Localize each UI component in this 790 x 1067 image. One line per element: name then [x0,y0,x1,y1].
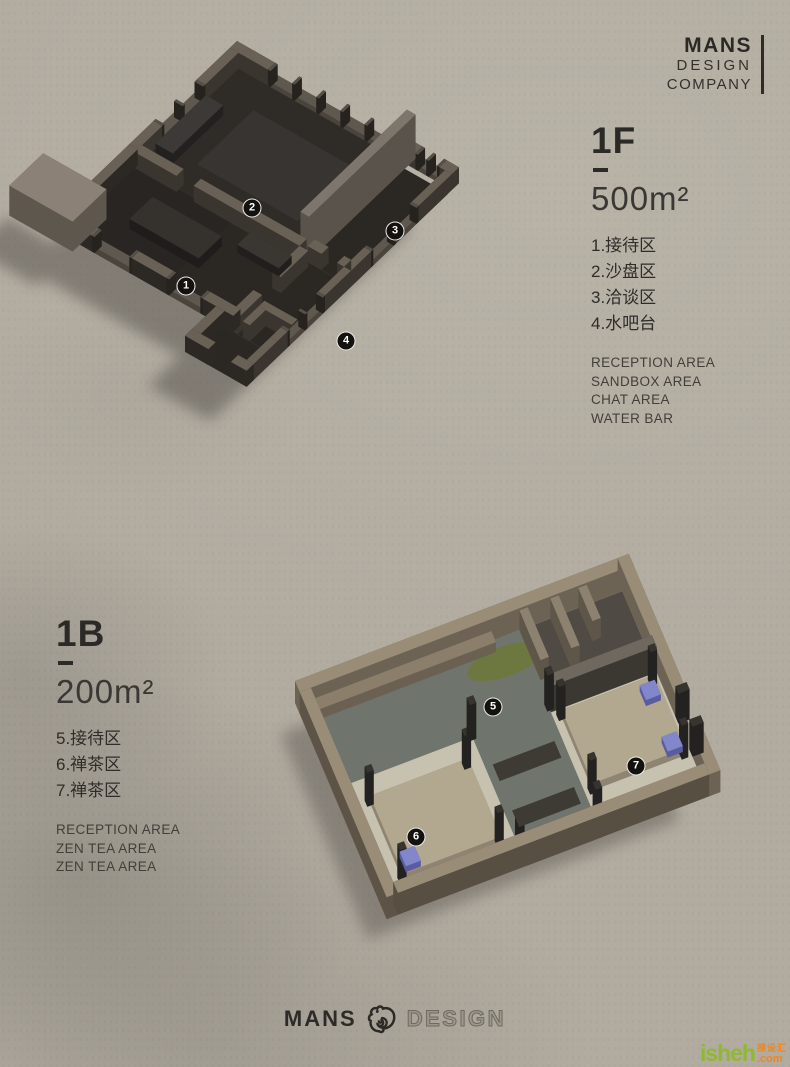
watermark-name: isheh [700,1042,755,1065]
legend-item-en: ZEN TEA AREA [56,840,180,859]
dash-divider [593,168,608,172]
site-watermark: isheh 搜设汇 .com [700,1042,787,1065]
footer-brand-design: DESIGN [407,1006,506,1032]
legend-item-en: RECEPTION AREA [591,354,715,373]
legend-1b-en-list: RECEPTION AREA ZEN TEA AREA ZEN TEA AREA [56,821,180,877]
watermark-side: 搜设汇 .com [757,1044,787,1065]
legend-item-en: RECEPTION AREA [56,821,180,840]
logo-line-2: DESIGN [667,57,752,76]
logo-line-3: COMPANY [667,76,752,94]
footer-brand-name: MANS [284,1006,357,1032]
watermark-cn: 搜设汇 [757,1044,787,1053]
legend-item-cn: 4.水吧台 [591,311,715,337]
floor-plan-1b [281,554,721,939]
legend-item-en: WATER BAR [591,410,715,429]
legend-1f-en-list: RECEPTION AREA SANDBOX AREA CHAT AREA WA… [591,354,715,428]
watermark-tld: .com [757,1054,787,1065]
legend-item-en: CHAT AREA [591,391,715,410]
legend-1f: 1F 500m² 1.接待区 2.沙盘区 3.洽谈区 4.水吧台 RECEPTI… [591,120,715,428]
legend-item-en: ZEN TEA AREA [56,858,180,877]
dash-divider [58,661,73,665]
chameleon-logo-icon [366,1004,398,1034]
floor-area-1b: 200m² [56,673,180,711]
logo-line-1: MANS [667,35,752,57]
legend-item-cn: 3.洽谈区 [591,285,715,311]
legend-item-en: SANDBOX AREA [591,373,715,392]
floor-code-1b: 1B [56,613,180,655]
floor-area-1f: 500m² [591,180,715,218]
company-logo: MANS DESIGN COMPANY [667,35,764,94]
legend-item-cn: 7.禅茶区 [56,778,180,804]
legend-item-cn: 1.接待区 [591,233,715,259]
legend-1b: 1B 200m² 5.接待区 6.禅茶区 7.禅茶区 RECEPTION ARE… [56,613,180,877]
legend-1f-cn-list: 1.接待区 2.沙盘区 3.洽谈区 4.水吧台 [591,233,715,337]
legend-item-cn: 5.接待区 [56,726,180,752]
legend-item-cn: 6.禅茶区 [56,752,180,778]
floor-code-1f: 1F [591,120,715,162]
footer-brand: MANS DESIGN [0,1004,790,1034]
poster-canvas: 1234567 MANS DESIGN COMPANY 1F 500m² 1.接… [0,0,790,1067]
legend-1b-cn-list: 5.接待区 6.禅茶区 7.禅茶区 [56,726,180,804]
floor-plan-1f [0,41,459,421]
legend-item-cn: 2.沙盘区 [591,259,715,285]
